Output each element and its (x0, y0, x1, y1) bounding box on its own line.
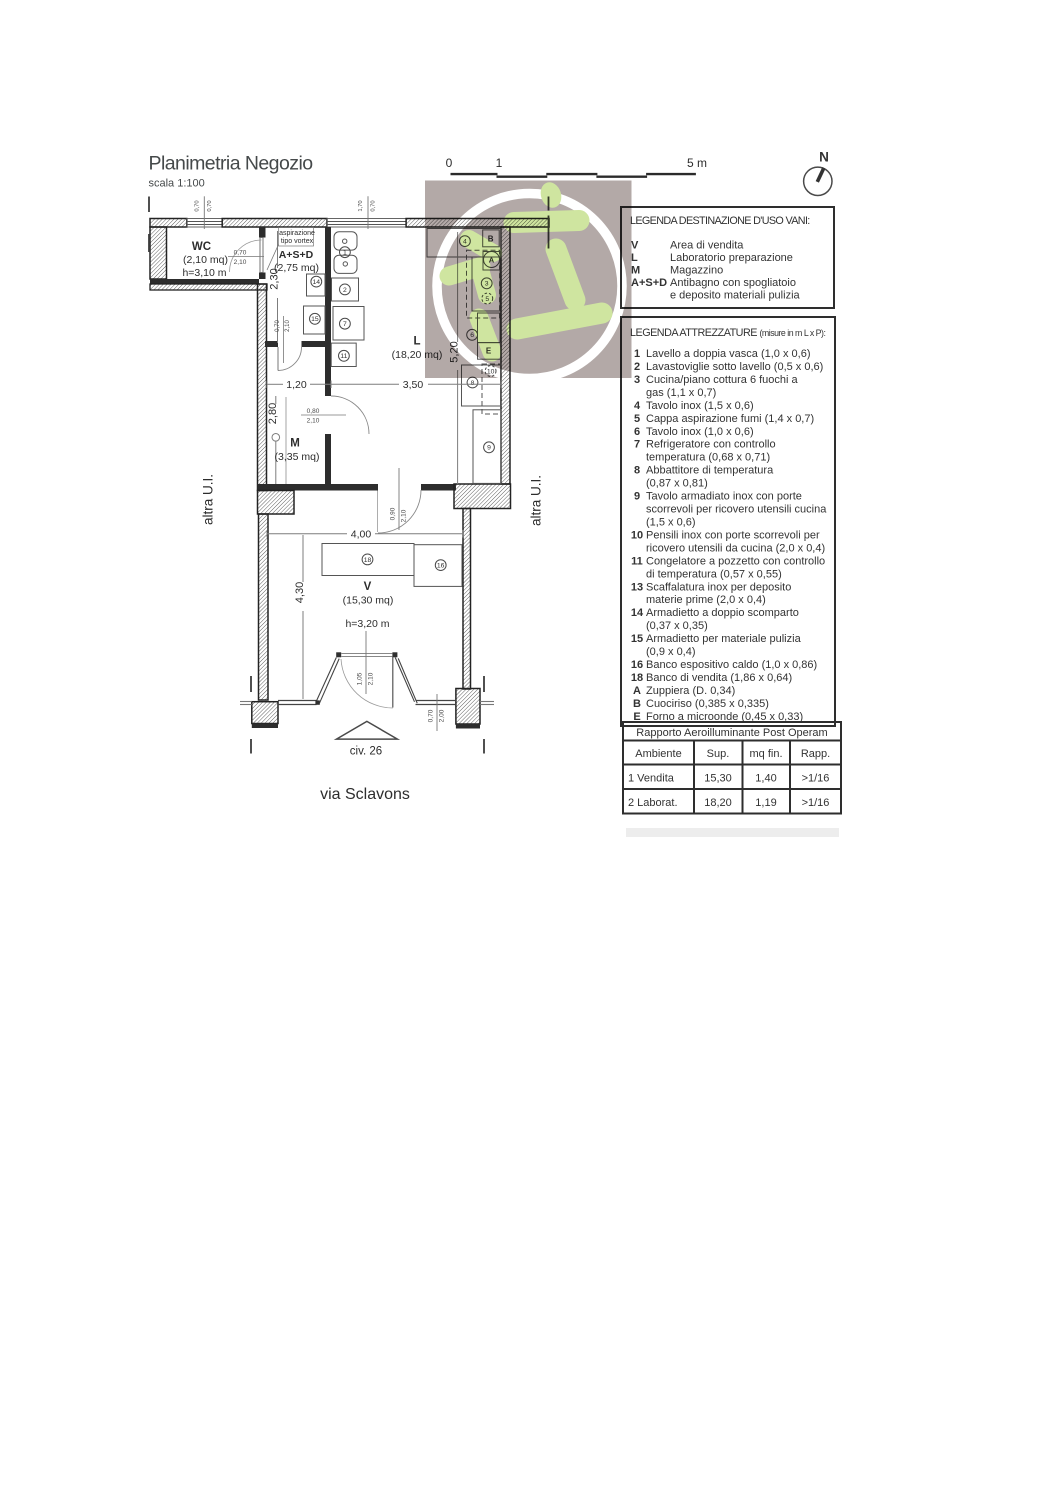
svg-text:2,80: 2,80 (267, 403, 279, 424)
svg-text:Tavolo inox (1,0 x 0,6): Tavolo inox (1,0 x 0,6) (646, 426, 754, 438)
svg-text:5 m: 5 m (687, 156, 707, 170)
svg-text:2,10: 2,10 (234, 259, 247, 266)
svg-text:B: B (488, 234, 494, 243)
svg-text:0,70: 0,70 (275, 320, 281, 332)
svg-text:Tavolo inox (1,5 x 0,6): Tavolo inox (1,5 x 0,6) (646, 400, 754, 412)
svg-text:Rapporto Aeroilluminante Post: Rapporto Aeroilluminante Post Operam (636, 727, 827, 739)
svg-text:e deposito materiali pulizia: e deposito materiali pulizia (670, 290, 801, 302)
svg-text:0,70: 0,70 (428, 709, 435, 722)
svg-text:V: V (364, 581, 372, 593)
svg-text:5: 5 (634, 413, 640, 425)
svg-text:Magazzino: Magazzino (670, 265, 723, 277)
svg-text:tipo vortex: tipo vortex (281, 238, 314, 245)
svg-text:2,10: 2,10 (307, 418, 320, 425)
svg-text:0,80: 0,80 (307, 408, 320, 415)
svg-text:2,10: 2,10 (285, 320, 291, 332)
svg-text:Congelatore a pozzetto con con: Congelatore a pozzetto con controllo (646, 555, 825, 567)
svg-text:Cuociriso (0,385 x 0,335): Cuociriso (0,385 x 0,335) (646, 698, 769, 710)
svg-text:1,20: 1,20 (286, 379, 307, 391)
svg-text:Laboratorio preparazione: Laboratorio preparazione (670, 252, 793, 264)
svg-text:(1,5 x 0,6): (1,5 x 0,6) (646, 517, 696, 529)
svg-text:1,19: 1,19 (755, 797, 776, 809)
svg-text:1,40: 1,40 (755, 773, 776, 785)
svg-text:Cucina/piano cottura 6 fuochi: Cucina/piano cottura 6 fuochi a (646, 374, 799, 386)
svg-text:Ambiente: Ambiente (635, 748, 681, 760)
svg-text:Scaffalatura inox per deposito: Scaffalatura inox per deposito (646, 581, 791, 593)
svg-text:(0,37 x 0,35): (0,37 x 0,35) (646, 620, 708, 632)
svg-text:11: 11 (340, 353, 347, 360)
svg-text:Pensili inox con porte scorrev: Pensili inox con porte scorrevoli per (646, 529, 820, 541)
svg-text:A+S+D: A+S+D (631, 277, 667, 289)
svg-text:1: 1 (496, 156, 503, 170)
svg-text:2: 2 (634, 361, 640, 373)
svg-text:5: 5 (485, 296, 489, 303)
svg-text:2,10: 2,10 (401, 509, 408, 522)
svg-text:6: 6 (470, 332, 474, 339)
svg-text:2,00: 2,00 (439, 709, 446, 722)
svg-text:A: A (633, 685, 641, 697)
svg-text:Armadietto a doppio scomparto: Armadietto a doppio scomparto (646, 607, 799, 619)
svg-text:4: 4 (463, 239, 467, 246)
svg-text:Zuppiera (D. 0,34): Zuppiera (D. 0,34) (646, 685, 735, 697)
svg-text:Tavolo armadiato inox con port: Tavolo armadiato inox con porte (646, 491, 802, 503)
svg-text:15: 15 (631, 633, 643, 645)
svg-text:2: 2 (343, 287, 347, 294)
svg-text:Area di vendita: Area di vendita (670, 240, 744, 252)
svg-text:1,05: 1,05 (357, 672, 364, 685)
svg-text:N: N (819, 150, 829, 165)
svg-text:Sup.: Sup. (707, 748, 730, 760)
svg-text:14: 14 (631, 607, 644, 619)
svg-text:>1/16: >1/16 (802, 797, 830, 809)
svg-text:ricovero utensili da cucina (2: ricovero utensili da cucina (2,0 x 0,4) (646, 542, 825, 554)
svg-text:scorrevoli per ricovero utensi: scorrevoli per ricovero utensili cucina (646, 504, 827, 516)
svg-text:1 Vendita: 1 Vendita (628, 773, 675, 785)
svg-text:8: 8 (471, 380, 475, 387)
svg-text:18: 18 (364, 557, 372, 564)
svg-text:mq fin.: mq fin. (749, 748, 782, 760)
svg-text:18: 18 (631, 672, 643, 684)
svg-text:M: M (631, 265, 640, 277)
svg-text:temperatura (0,68 x 0,71): temperatura (0,68 x 0,71) (646, 452, 770, 464)
svg-text:1,70: 1,70 (358, 200, 364, 211)
svg-text:>1/16: >1/16 (802, 773, 830, 785)
svg-text:18,20: 18,20 (704, 797, 732, 809)
svg-text:0,70: 0,70 (195, 200, 201, 211)
svg-text:WC: WC (192, 241, 211, 253)
svg-text:L: L (631, 252, 638, 264)
svg-text:0: 0 (446, 156, 453, 170)
svg-text:civ. 26: civ. 26 (350, 746, 382, 758)
svg-text:Banco di vendita (1,86 x 0,64): Banco di vendita (1,86 x 0,64) (646, 672, 792, 684)
svg-text:(0,87 x 0,81): (0,87 x 0,81) (646, 478, 708, 490)
svg-text:LEGENDA ATTREZZATURE (misure i: LEGENDA ATTREZZATURE (misure in m L x P)… (630, 327, 825, 339)
svg-text:(2,75 mq): (2,75 mq) (274, 262, 319, 274)
svg-text:scala 1:100: scala 1:100 (149, 178, 205, 190)
svg-text:16: 16 (437, 563, 445, 570)
svg-text:M: M (290, 438, 300, 450)
svg-text:9: 9 (634, 491, 640, 503)
svg-text:7: 7 (634, 439, 640, 451)
svg-text:Rapp.: Rapp. (801, 748, 830, 760)
svg-text:4,00: 4,00 (351, 529, 372, 541)
svg-text:0,90: 0,90 (390, 507, 397, 520)
svg-text:3,50: 3,50 (403, 379, 424, 391)
svg-text:2 Laborat.: 2 Laborat. (628, 797, 678, 809)
svg-text:materie prime (2,0 x 0,4): materie prime (2,0 x 0,4) (646, 594, 766, 606)
svg-text:di temperatura (0,57 x 0,55): di temperatura (0,57 x 0,55) (646, 568, 782, 580)
svg-text:LEGENDA DESTINAZIONE D'USO VAN: LEGENDA DESTINAZIONE D'USO VANI: (630, 215, 810, 227)
svg-text:aspirazione: aspirazione (279, 230, 315, 237)
svg-text:16: 16 (631, 659, 643, 671)
svg-text:2,10: 2,10 (368, 672, 375, 685)
svg-text:B: B (633, 698, 641, 710)
svg-text:3: 3 (485, 281, 489, 288)
svg-text:V: V (631, 240, 639, 252)
svg-text:11: 11 (631, 555, 643, 567)
svg-text:Lavastoviglie sotto lavello (0: Lavastoviglie sotto lavello (0,5 x 0,6) (646, 361, 823, 373)
svg-text:Abbattitore di temperatura: Abbattitore di temperatura (646, 465, 774, 477)
svg-text:1: 1 (634, 348, 640, 360)
svg-text:7: 7 (343, 321, 347, 328)
svg-text:Planimetria Negozio: Planimetria Negozio (149, 153, 314, 175)
svg-text:L: L (413, 336, 420, 348)
svg-text:Refrigeratore con controllo: Refrigeratore con controllo (646, 439, 776, 451)
svg-text:Armadietto per materiale puliz: Armadietto per materiale pulizia (646, 633, 802, 645)
svg-text:15,30: 15,30 (704, 773, 732, 785)
svg-text:9: 9 (487, 445, 491, 452)
svg-text:A+S+D: A+S+D (279, 249, 314, 261)
svg-text:altra U.I.: altra U.I. (201, 474, 216, 525)
svg-text:15: 15 (311, 316, 319, 323)
svg-text:4,30: 4,30 (294, 582, 306, 603)
svg-text:(18,20 mq): (18,20 mq) (392, 349, 443, 361)
svg-text:Lavello a doppia vasca (1,0 x: Lavello a doppia vasca (1,0 x 0,6) (646, 348, 811, 360)
svg-text:E: E (486, 347, 492, 356)
svg-text:altra U.I.: altra U.I. (529, 475, 544, 526)
svg-text:10: 10 (487, 368, 495, 375)
svg-text:8: 8 (634, 465, 640, 477)
svg-text:Banco espositivo caldo (1,0 x: Banco espositivo caldo (1,0 x 0,86) (646, 659, 817, 671)
svg-text:(0,9 x 0,4): (0,9 x 0,4) (646, 646, 696, 658)
svg-text:0,70: 0,70 (207, 200, 213, 211)
svg-text:10: 10 (631, 529, 643, 541)
svg-text:1: 1 (343, 250, 347, 257)
svg-text:0,70: 0,70 (371, 200, 377, 211)
svg-text:6: 6 (634, 426, 640, 438)
svg-text:gas (1,1 x 0,7): gas (1,1 x 0,7) (646, 387, 716, 399)
svg-text:0,70: 0,70 (234, 250, 247, 257)
svg-text:14: 14 (313, 279, 321, 286)
svg-text:3: 3 (634, 374, 640, 386)
svg-text:5,20: 5,20 (449, 341, 461, 362)
svg-text:Cappa aspirazione fumi (1,4 x: Cappa aspirazione fumi (1,4 x 0,7) (646, 413, 814, 425)
svg-text:A: A (489, 255, 495, 264)
svg-text:4: 4 (634, 400, 641, 412)
svg-text:(2,10 mq): (2,10 mq) (183, 254, 228, 266)
svg-text:13: 13 (631, 581, 643, 593)
svg-text:h=3,10 m: h=3,10 m (182, 267, 226, 279)
svg-text:h=3,20 m: h=3,20 m (345, 618, 389, 630)
svg-text:Antibagno con spogliatoio: Antibagno con spogliatoio (670, 277, 796, 289)
svg-text:(3,35 mq): (3,35 mq) (275, 451, 320, 463)
svg-text:via Sclavons: via Sclavons (320, 786, 410, 803)
svg-text:(15,30 mq): (15,30 mq) (343, 595, 394, 607)
